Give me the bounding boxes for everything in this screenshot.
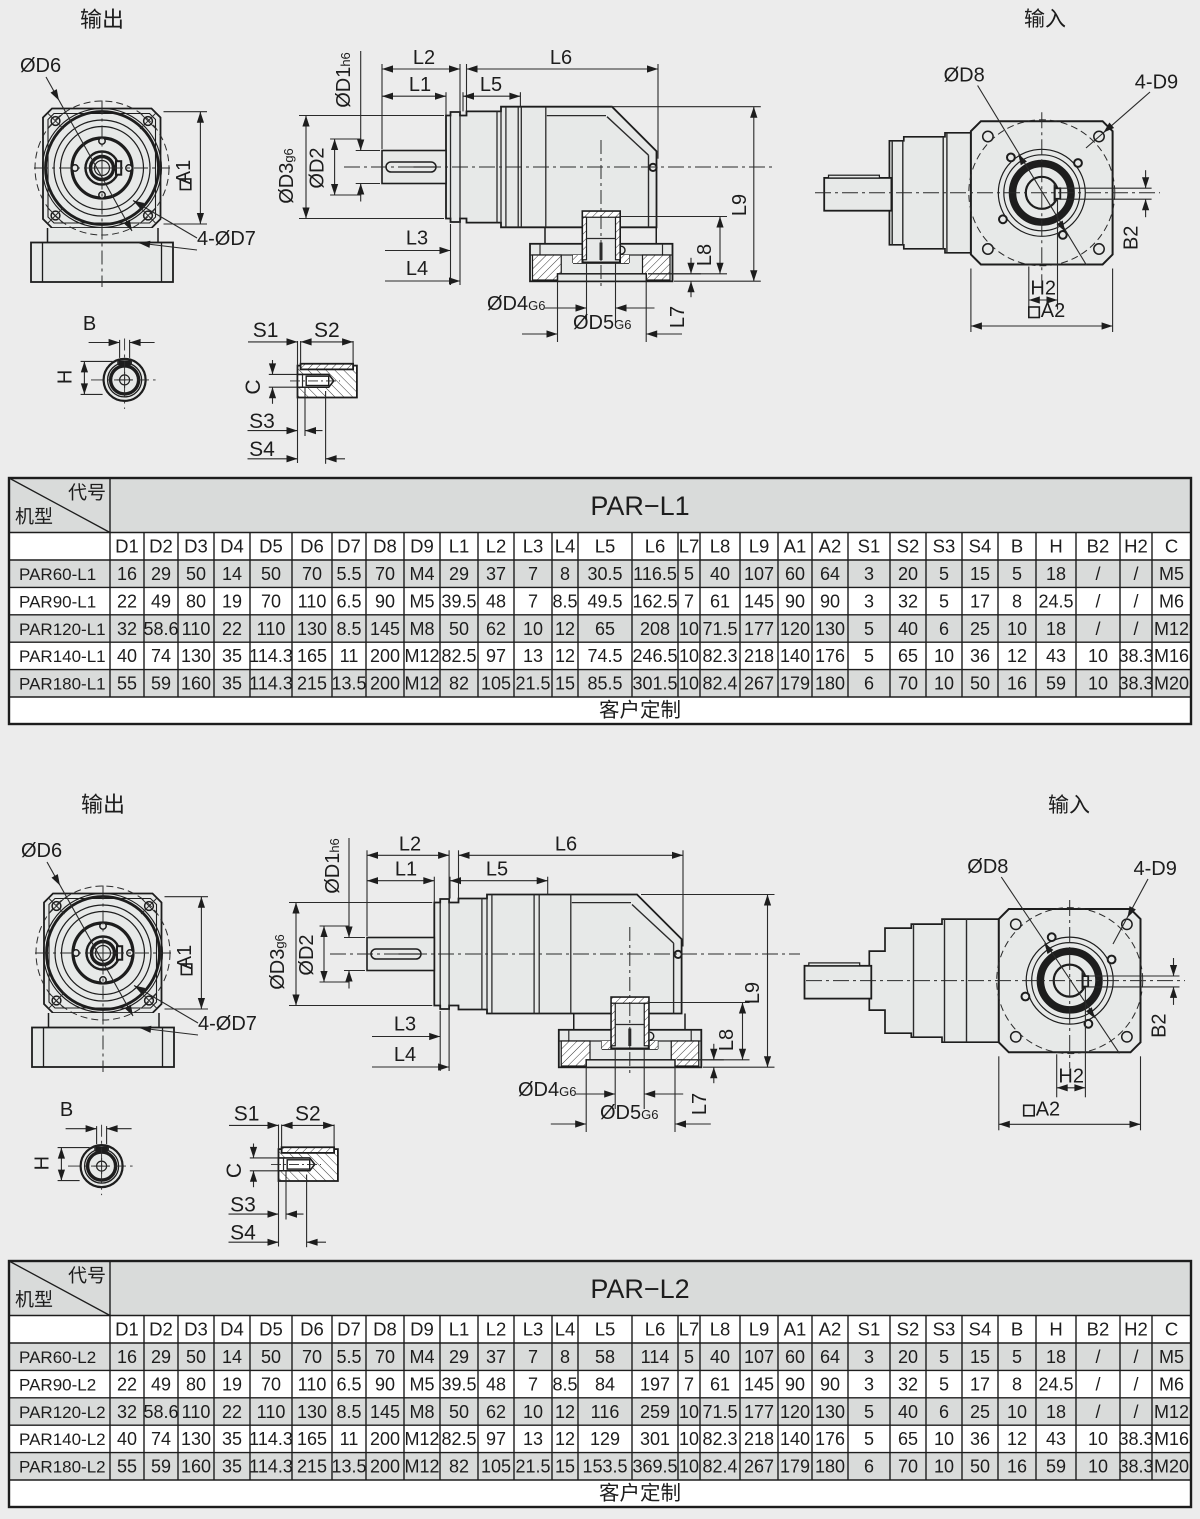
svg-text:M12: M12 bbox=[404, 674, 439, 694]
svg-text:11: 11 bbox=[340, 1429, 359, 1449]
svg-text:M20: M20 bbox=[1154, 1457, 1189, 1477]
svg-text:21.5: 21.5 bbox=[515, 1457, 550, 1477]
svg-text:70: 70 bbox=[261, 591, 281, 611]
svg-text:84: 84 bbox=[595, 1374, 615, 1394]
svg-text:S4: S4 bbox=[249, 438, 275, 461]
svg-text:35: 35 bbox=[222, 1429, 242, 1449]
svg-text:3: 3 bbox=[864, 591, 874, 611]
svg-text:200: 200 bbox=[370, 674, 400, 694]
svg-text:S3: S3 bbox=[249, 410, 275, 433]
svg-text:L4: L4 bbox=[406, 258, 428, 280]
svg-text:L8: L8 bbox=[710, 536, 731, 557]
svg-text:12: 12 bbox=[555, 1402, 575, 1422]
svg-text:6: 6 bbox=[864, 1457, 874, 1477]
svg-text:59: 59 bbox=[1046, 1457, 1066, 1477]
svg-text:ØD8: ØD8 bbox=[944, 65, 985, 87]
svg-text:17: 17 bbox=[970, 591, 990, 611]
svg-text:105: 105 bbox=[481, 1457, 511, 1477]
svg-text:L9: L9 bbox=[729, 194, 751, 216]
svg-text:90: 90 bbox=[785, 591, 805, 611]
svg-text:15: 15 bbox=[555, 1457, 575, 1477]
svg-text:153.5: 153.5 bbox=[582, 1457, 627, 1477]
svg-text:PAR60-L1: PAR60-L1 bbox=[19, 565, 96, 584]
svg-text:39.5: 39.5 bbox=[441, 591, 476, 611]
svg-text:D5: D5 bbox=[259, 536, 283, 557]
svg-text:L2: L2 bbox=[399, 833, 421, 855]
svg-text:D8: D8 bbox=[373, 536, 397, 557]
svg-text:97: 97 bbox=[486, 1429, 506, 1449]
svg-text:114.3: 114.3 bbox=[249, 1457, 293, 1477]
svg-text:82: 82 bbox=[449, 674, 469, 694]
svg-text:39.5: 39.5 bbox=[441, 1374, 476, 1394]
svg-text:/: / bbox=[1133, 1347, 1138, 1367]
svg-text:10: 10 bbox=[934, 646, 954, 666]
svg-text:8.5: 8.5 bbox=[552, 591, 577, 611]
svg-text:129: 129 bbox=[590, 1429, 620, 1449]
svg-text:110: 110 bbox=[257, 1402, 286, 1422]
svg-text:10: 10 bbox=[1088, 1429, 1108, 1449]
svg-text:L4: L4 bbox=[555, 536, 576, 557]
svg-text:4-ØD7: 4-ØD7 bbox=[197, 228, 256, 250]
svg-text:L6: L6 bbox=[555, 833, 577, 855]
svg-text:H2: H2 bbox=[1124, 1319, 1148, 1340]
svg-text:40: 40 bbox=[117, 1429, 137, 1449]
svg-text:218: 218 bbox=[744, 1429, 774, 1449]
svg-text:15: 15 bbox=[555, 674, 575, 694]
svg-text:90: 90 bbox=[820, 591, 840, 611]
svg-text:32: 32 bbox=[117, 1402, 137, 1422]
svg-text:48: 48 bbox=[486, 1374, 506, 1394]
svg-text:M4: M4 bbox=[409, 564, 434, 584]
svg-text:10: 10 bbox=[1007, 619, 1027, 639]
svg-text:L1: L1 bbox=[449, 536, 470, 557]
svg-text:97: 97 bbox=[486, 646, 506, 666]
svg-text:38.3: 38.3 bbox=[1118, 674, 1153, 694]
svg-text:82.3: 82.3 bbox=[702, 646, 737, 666]
svg-text:PAR90-L2: PAR90-L2 bbox=[19, 1375, 96, 1394]
svg-text:10: 10 bbox=[679, 619, 699, 639]
svg-text:8: 8 bbox=[560, 1347, 570, 1367]
svg-text:S1: S1 bbox=[234, 1103, 260, 1126]
svg-text:A2: A2 bbox=[819, 536, 842, 557]
svg-text:10: 10 bbox=[679, 674, 699, 694]
svg-text:PAR140-L2: PAR140-L2 bbox=[19, 1430, 106, 1449]
svg-text:M16: M16 bbox=[1154, 646, 1189, 666]
svg-text:L8: L8 bbox=[716, 1029, 738, 1051]
svg-text:60: 60 bbox=[785, 1347, 805, 1367]
svg-text:/: / bbox=[1133, 1374, 1138, 1394]
svg-text:18: 18 bbox=[1046, 619, 1066, 639]
svg-text:25: 25 bbox=[970, 1402, 990, 1422]
svg-text:70: 70 bbox=[375, 1347, 395, 1367]
svg-text:8.5: 8.5 bbox=[336, 619, 361, 639]
svg-text:29: 29 bbox=[449, 1347, 469, 1367]
svg-text:24.5: 24.5 bbox=[1038, 1374, 1073, 1394]
svg-text:14: 14 bbox=[222, 1347, 242, 1367]
svg-text:D2: D2 bbox=[149, 1319, 173, 1340]
svg-text:24.5: 24.5 bbox=[1038, 591, 1073, 611]
svg-text:16: 16 bbox=[117, 564, 137, 584]
svg-text:200: 200 bbox=[370, 1429, 400, 1449]
svg-text:C: C bbox=[1165, 536, 1178, 557]
svg-text:40: 40 bbox=[710, 564, 730, 584]
svg-text:64: 64 bbox=[820, 1347, 840, 1367]
svg-text:90: 90 bbox=[375, 1374, 395, 1394]
svg-text:80: 80 bbox=[186, 1374, 206, 1394]
svg-text:259: 259 bbox=[640, 1402, 670, 1422]
svg-text:65: 65 bbox=[595, 619, 615, 639]
svg-text:B: B bbox=[1011, 1319, 1023, 1340]
svg-text:C: C bbox=[1165, 1319, 1178, 1340]
svg-text:12: 12 bbox=[1007, 646, 1027, 666]
svg-text:D6: D6 bbox=[300, 1319, 324, 1340]
svg-text:4-D9: 4-D9 bbox=[1134, 858, 1177, 880]
svg-text:5: 5 bbox=[1012, 1347, 1022, 1367]
svg-text:S4: S4 bbox=[969, 1319, 992, 1340]
svg-text:3: 3 bbox=[864, 1347, 874, 1367]
svg-text:10: 10 bbox=[679, 1429, 699, 1449]
svg-text:165: 165 bbox=[297, 1429, 327, 1449]
svg-text:5: 5 bbox=[684, 564, 694, 584]
svg-text:267: 267 bbox=[744, 1457, 774, 1477]
svg-text:16: 16 bbox=[117, 1347, 137, 1367]
svg-text:61: 61 bbox=[710, 591, 730, 611]
svg-text:D3: D3 bbox=[184, 536, 208, 557]
svg-text:5: 5 bbox=[939, 591, 949, 611]
svg-text:369.5: 369.5 bbox=[632, 1457, 677, 1477]
svg-text:D4: D4 bbox=[220, 536, 244, 557]
svg-text:7: 7 bbox=[684, 591, 694, 611]
svg-text:15: 15 bbox=[970, 1347, 990, 1367]
svg-text:22: 22 bbox=[117, 1374, 137, 1394]
svg-text:20: 20 bbox=[898, 564, 918, 584]
svg-text:50: 50 bbox=[449, 1402, 469, 1422]
svg-text:49: 49 bbox=[151, 1374, 171, 1394]
svg-text:H2: H2 bbox=[1124, 536, 1148, 557]
svg-text:64: 64 bbox=[820, 564, 840, 584]
svg-text:82.3: 82.3 bbox=[702, 1429, 737, 1449]
svg-text:32: 32 bbox=[898, 591, 918, 611]
svg-text:176: 176 bbox=[815, 1429, 845, 1449]
svg-text:6: 6 bbox=[939, 619, 949, 639]
svg-text:30.5: 30.5 bbox=[587, 564, 622, 584]
svg-text:M12: M12 bbox=[404, 1457, 439, 1477]
svg-text:5: 5 bbox=[864, 646, 874, 666]
svg-text:10: 10 bbox=[523, 619, 543, 639]
svg-text:ØD8: ØD8 bbox=[967, 856, 1008, 878]
svg-text:120: 120 bbox=[780, 619, 810, 639]
svg-text:M16: M16 bbox=[1154, 1429, 1189, 1449]
svg-text:37: 37 bbox=[486, 564, 506, 584]
svg-text:D5: D5 bbox=[259, 1319, 283, 1340]
svg-text:70: 70 bbox=[302, 564, 322, 584]
svg-text:5: 5 bbox=[939, 1347, 949, 1367]
svg-text:140: 140 bbox=[780, 646, 810, 666]
svg-text:H: H bbox=[1049, 1319, 1062, 1340]
svg-text:36: 36 bbox=[970, 646, 990, 666]
svg-text:62: 62 bbox=[486, 619, 506, 639]
svg-text:5: 5 bbox=[864, 1429, 874, 1449]
svg-text:A1: A1 bbox=[784, 536, 807, 557]
svg-text:10: 10 bbox=[1007, 1402, 1027, 1422]
svg-text:37: 37 bbox=[486, 1347, 506, 1367]
svg-text:6: 6 bbox=[864, 674, 874, 694]
svg-text:165: 165 bbox=[297, 646, 327, 666]
svg-text:L8: L8 bbox=[694, 244, 716, 266]
svg-text:S4: S4 bbox=[230, 1222, 256, 1245]
svg-text:130: 130 bbox=[181, 1429, 211, 1449]
svg-text:50: 50 bbox=[186, 564, 206, 584]
svg-text:S4: S4 bbox=[969, 536, 992, 557]
svg-text:58.6: 58.6 bbox=[143, 1402, 178, 1422]
svg-text:5.5: 5.5 bbox=[336, 564, 361, 584]
svg-text:S3: S3 bbox=[933, 1319, 956, 1340]
svg-text:58: 58 bbox=[595, 1347, 615, 1367]
svg-text:D1: D1 bbox=[115, 536, 139, 557]
svg-text:M5: M5 bbox=[409, 591, 434, 611]
svg-text:L9: L9 bbox=[742, 982, 764, 1004]
svg-text:A1: A1 bbox=[784, 1319, 807, 1340]
svg-text:70: 70 bbox=[302, 1347, 322, 1367]
svg-text:55: 55 bbox=[117, 1457, 137, 1477]
svg-text:29: 29 bbox=[449, 564, 469, 584]
svg-text:107: 107 bbox=[744, 564, 774, 584]
svg-text:74.5: 74.5 bbox=[587, 646, 622, 666]
svg-text:179: 179 bbox=[780, 1457, 810, 1477]
svg-text:/: / bbox=[1095, 564, 1100, 584]
svg-text:301: 301 bbox=[640, 1429, 670, 1449]
svg-text:/: / bbox=[1095, 591, 1100, 611]
svg-text:114.3: 114.3 bbox=[249, 674, 293, 694]
svg-text:5: 5 bbox=[864, 1402, 874, 1422]
svg-text:116.5: 116.5 bbox=[633, 564, 677, 584]
svg-text:M5: M5 bbox=[1159, 564, 1184, 584]
svg-text:M6: M6 bbox=[1159, 1374, 1184, 1394]
svg-text:10: 10 bbox=[934, 1457, 954, 1477]
svg-text:7: 7 bbox=[528, 591, 538, 611]
svg-text:6.5: 6.5 bbox=[336, 591, 361, 611]
svg-text:S2: S2 bbox=[897, 536, 920, 557]
svg-text:160: 160 bbox=[181, 1457, 211, 1477]
svg-text:L3: L3 bbox=[406, 228, 428, 250]
svg-text:4-D9: 4-D9 bbox=[1135, 71, 1178, 93]
svg-text:L3: L3 bbox=[523, 1319, 544, 1340]
svg-text:60: 60 bbox=[785, 564, 805, 584]
svg-text:70: 70 bbox=[261, 1374, 281, 1394]
svg-text:22: 22 bbox=[117, 591, 137, 611]
svg-text:L2: L2 bbox=[486, 536, 507, 557]
svg-text:S3: S3 bbox=[230, 1194, 256, 1217]
svg-text:/: / bbox=[1133, 1402, 1138, 1422]
svg-text:L5: L5 bbox=[486, 859, 508, 881]
svg-text:70: 70 bbox=[375, 564, 395, 584]
svg-text:PAR120-L2: PAR120-L2 bbox=[19, 1403, 106, 1422]
svg-text:L5: L5 bbox=[595, 1319, 616, 1340]
svg-text:B2: B2 bbox=[1087, 536, 1110, 557]
svg-text:21.5: 21.5 bbox=[515, 674, 550, 694]
svg-text:L3: L3 bbox=[523, 536, 544, 557]
svg-text:D7: D7 bbox=[337, 1319, 361, 1340]
svg-text:L7: L7 bbox=[679, 1319, 700, 1340]
svg-text:267: 267 bbox=[744, 674, 774, 694]
svg-text:5: 5 bbox=[864, 619, 874, 639]
svg-text:110: 110 bbox=[182, 1402, 211, 1422]
svg-text:62: 62 bbox=[486, 1402, 506, 1422]
svg-text:/: / bbox=[1133, 564, 1138, 584]
svg-text:14: 14 bbox=[222, 564, 242, 584]
svg-text:301.5: 301.5 bbox=[632, 674, 677, 694]
svg-text:/: / bbox=[1095, 1402, 1100, 1422]
svg-text:M12: M12 bbox=[1154, 1402, 1189, 1422]
svg-text:L1: L1 bbox=[409, 74, 431, 96]
svg-text:114.3: 114.3 bbox=[249, 1429, 293, 1449]
svg-text:M5: M5 bbox=[1159, 1347, 1184, 1367]
svg-text:40: 40 bbox=[117, 646, 137, 666]
svg-text:L2: L2 bbox=[413, 47, 435, 69]
svg-text:H2: H2 bbox=[1030, 278, 1056, 300]
svg-text:40: 40 bbox=[710, 1347, 730, 1367]
svg-text:B: B bbox=[83, 313, 96, 335]
svg-text:13: 13 bbox=[523, 1429, 543, 1449]
svg-text:L8: L8 bbox=[710, 1319, 731, 1340]
svg-text:82.5: 82.5 bbox=[441, 646, 476, 666]
svg-text:71.5: 71.5 bbox=[702, 1402, 737, 1422]
svg-text:130: 130 bbox=[181, 646, 211, 666]
svg-text:7: 7 bbox=[528, 1374, 538, 1394]
svg-text:145: 145 bbox=[370, 1402, 400, 1422]
svg-text:74: 74 bbox=[151, 1429, 171, 1449]
svg-text:PAR−L1: PAR−L1 bbox=[590, 491, 689, 521]
svg-text:D3: D3 bbox=[184, 1319, 208, 1340]
svg-text:145: 145 bbox=[744, 1374, 774, 1394]
svg-text:M12: M12 bbox=[404, 646, 439, 666]
svg-text:36: 36 bbox=[970, 1429, 990, 1449]
svg-text:ØD6: ØD6 bbox=[20, 55, 61, 77]
svg-text:L3: L3 bbox=[394, 1014, 416, 1036]
svg-text:L9: L9 bbox=[749, 536, 770, 557]
svg-text:L4: L4 bbox=[555, 1319, 576, 1340]
svg-text:18: 18 bbox=[1046, 564, 1066, 584]
svg-text:13.5: 13.5 bbox=[331, 1457, 366, 1477]
svg-text:177: 177 bbox=[744, 1402, 774, 1422]
svg-text:L2: L2 bbox=[486, 1319, 507, 1340]
svg-text:A2: A2 bbox=[1041, 300, 1065, 322]
svg-text:16: 16 bbox=[1007, 1457, 1027, 1477]
svg-text:180: 180 bbox=[815, 674, 845, 694]
svg-text:S1: S1 bbox=[858, 1319, 881, 1340]
svg-text:B2: B2 bbox=[1149, 1013, 1171, 1037]
svg-text:50: 50 bbox=[186, 1347, 206, 1367]
svg-text:12: 12 bbox=[555, 619, 575, 639]
svg-text:90: 90 bbox=[785, 1374, 805, 1394]
svg-text:145: 145 bbox=[744, 591, 774, 611]
svg-text:D2: D2 bbox=[149, 536, 173, 557]
svg-text:M20: M20 bbox=[1154, 674, 1189, 694]
svg-text:22: 22 bbox=[222, 1402, 242, 1422]
svg-text:38.3: 38.3 bbox=[1118, 1429, 1153, 1449]
svg-text:ØD2: ØD2 bbox=[296, 934, 318, 975]
svg-text:11: 11 bbox=[340, 646, 359, 666]
svg-text:L9: L9 bbox=[749, 1319, 770, 1340]
svg-text:70: 70 bbox=[898, 1457, 918, 1477]
svg-text:50: 50 bbox=[970, 674, 990, 694]
svg-text:140: 140 bbox=[780, 1429, 810, 1449]
svg-text:218: 218 bbox=[744, 646, 774, 666]
svg-text:/: / bbox=[1095, 1347, 1100, 1367]
svg-text:S2: S2 bbox=[295, 1103, 321, 1126]
svg-text:3: 3 bbox=[864, 1374, 874, 1394]
svg-text:10: 10 bbox=[679, 646, 699, 666]
svg-text:177: 177 bbox=[744, 619, 774, 639]
svg-text:105: 105 bbox=[481, 674, 511, 694]
svg-text:5: 5 bbox=[939, 1374, 949, 1394]
svg-text:114.3: 114.3 bbox=[249, 646, 293, 666]
svg-text:130: 130 bbox=[815, 619, 845, 639]
svg-text:65: 65 bbox=[898, 1429, 918, 1449]
svg-text:H: H bbox=[1049, 536, 1062, 557]
svg-text:29: 29 bbox=[151, 1347, 171, 1367]
svg-text:7: 7 bbox=[684, 1374, 694, 1394]
svg-text:ØD2: ØD2 bbox=[307, 147, 329, 188]
svg-text:10: 10 bbox=[1088, 674, 1108, 694]
svg-text:19: 19 bbox=[222, 591, 242, 611]
svg-text:S2: S2 bbox=[897, 1319, 920, 1340]
svg-text:6.5: 6.5 bbox=[336, 1374, 361, 1394]
svg-text:H: H bbox=[55, 370, 77, 384]
svg-text:M4: M4 bbox=[409, 1347, 434, 1367]
svg-text:10: 10 bbox=[934, 1429, 954, 1449]
svg-text:110: 110 bbox=[298, 1374, 327, 1394]
svg-text:80: 80 bbox=[186, 591, 206, 611]
svg-text:50: 50 bbox=[261, 1347, 281, 1367]
svg-text:PAR120-L1: PAR120-L1 bbox=[19, 620, 106, 639]
svg-text:B: B bbox=[60, 1099, 73, 1121]
svg-text:35: 35 bbox=[222, 1457, 242, 1477]
svg-text:58.6: 58.6 bbox=[143, 619, 178, 639]
svg-text:13.5: 13.5 bbox=[331, 674, 366, 694]
svg-text:43: 43 bbox=[1046, 646, 1066, 666]
svg-text:18: 18 bbox=[1046, 1347, 1066, 1367]
svg-text:40: 40 bbox=[898, 619, 918, 639]
svg-text:50: 50 bbox=[261, 564, 281, 584]
svg-text:35: 35 bbox=[222, 674, 242, 694]
svg-text:10: 10 bbox=[679, 1402, 699, 1422]
svg-text:L6: L6 bbox=[645, 536, 666, 557]
svg-text:38.3: 38.3 bbox=[1118, 646, 1153, 666]
svg-text:C: C bbox=[242, 379, 265, 394]
svg-text:/: / bbox=[1095, 1374, 1100, 1394]
svg-text:82: 82 bbox=[449, 1457, 469, 1477]
svg-text:5: 5 bbox=[939, 564, 949, 584]
svg-text:D8: D8 bbox=[373, 1319, 397, 1340]
svg-text:55: 55 bbox=[117, 674, 137, 694]
svg-text:160: 160 bbox=[181, 674, 211, 694]
svg-text:5: 5 bbox=[684, 1347, 694, 1367]
svg-text:162.5: 162.5 bbox=[632, 591, 677, 611]
svg-text:PAR140-L1: PAR140-L1 bbox=[19, 647, 106, 666]
svg-text:82.4: 82.4 bbox=[702, 674, 737, 694]
svg-text:4-ØD7: 4-ØD7 bbox=[198, 1013, 257, 1035]
svg-text:179: 179 bbox=[780, 674, 810, 694]
svg-text:L5: L5 bbox=[480, 74, 502, 96]
svg-text:48: 48 bbox=[486, 591, 506, 611]
svg-text:L1: L1 bbox=[449, 1319, 470, 1340]
svg-text:B2: B2 bbox=[1087, 1319, 1110, 1340]
svg-text:/: / bbox=[1133, 591, 1138, 611]
svg-text:/: / bbox=[1095, 619, 1100, 639]
svg-text:8: 8 bbox=[1012, 591, 1022, 611]
svg-text:8: 8 bbox=[560, 564, 570, 584]
